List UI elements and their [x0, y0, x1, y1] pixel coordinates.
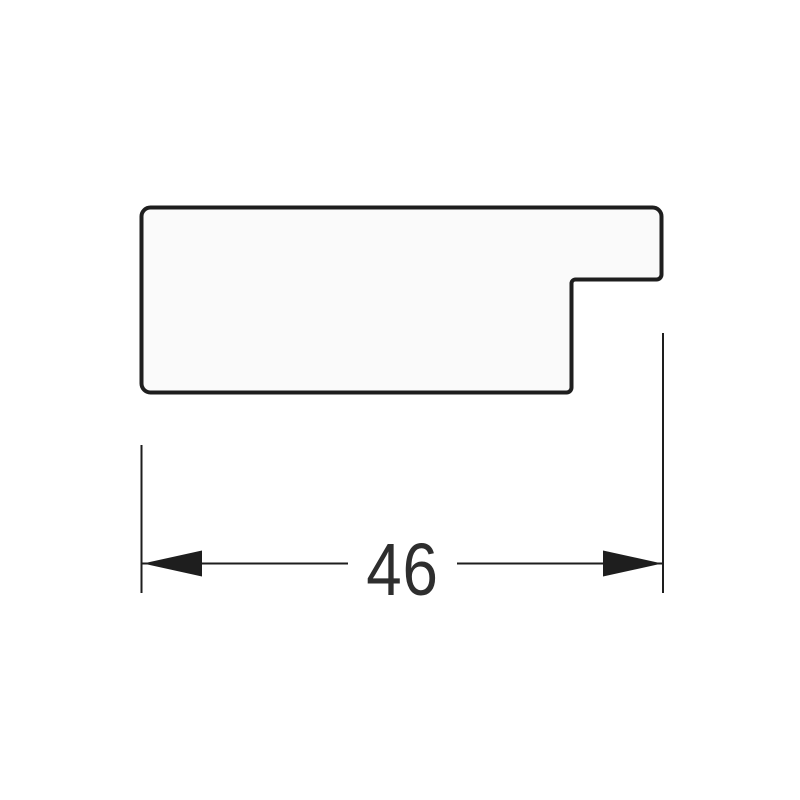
technical-drawing: 46 [0, 0, 800, 800]
moulding-profile-outline [142, 208, 662, 393]
right-arrowhead-icon [603, 551, 662, 577]
drawing-area: 46 [0, 0, 800, 800]
dimension-value-label: 46 [366, 529, 439, 612]
left-arrowhead-icon [143, 551, 202, 577]
page: { "page": { "background_color": "#ffffff… [0, 0, 800, 800]
